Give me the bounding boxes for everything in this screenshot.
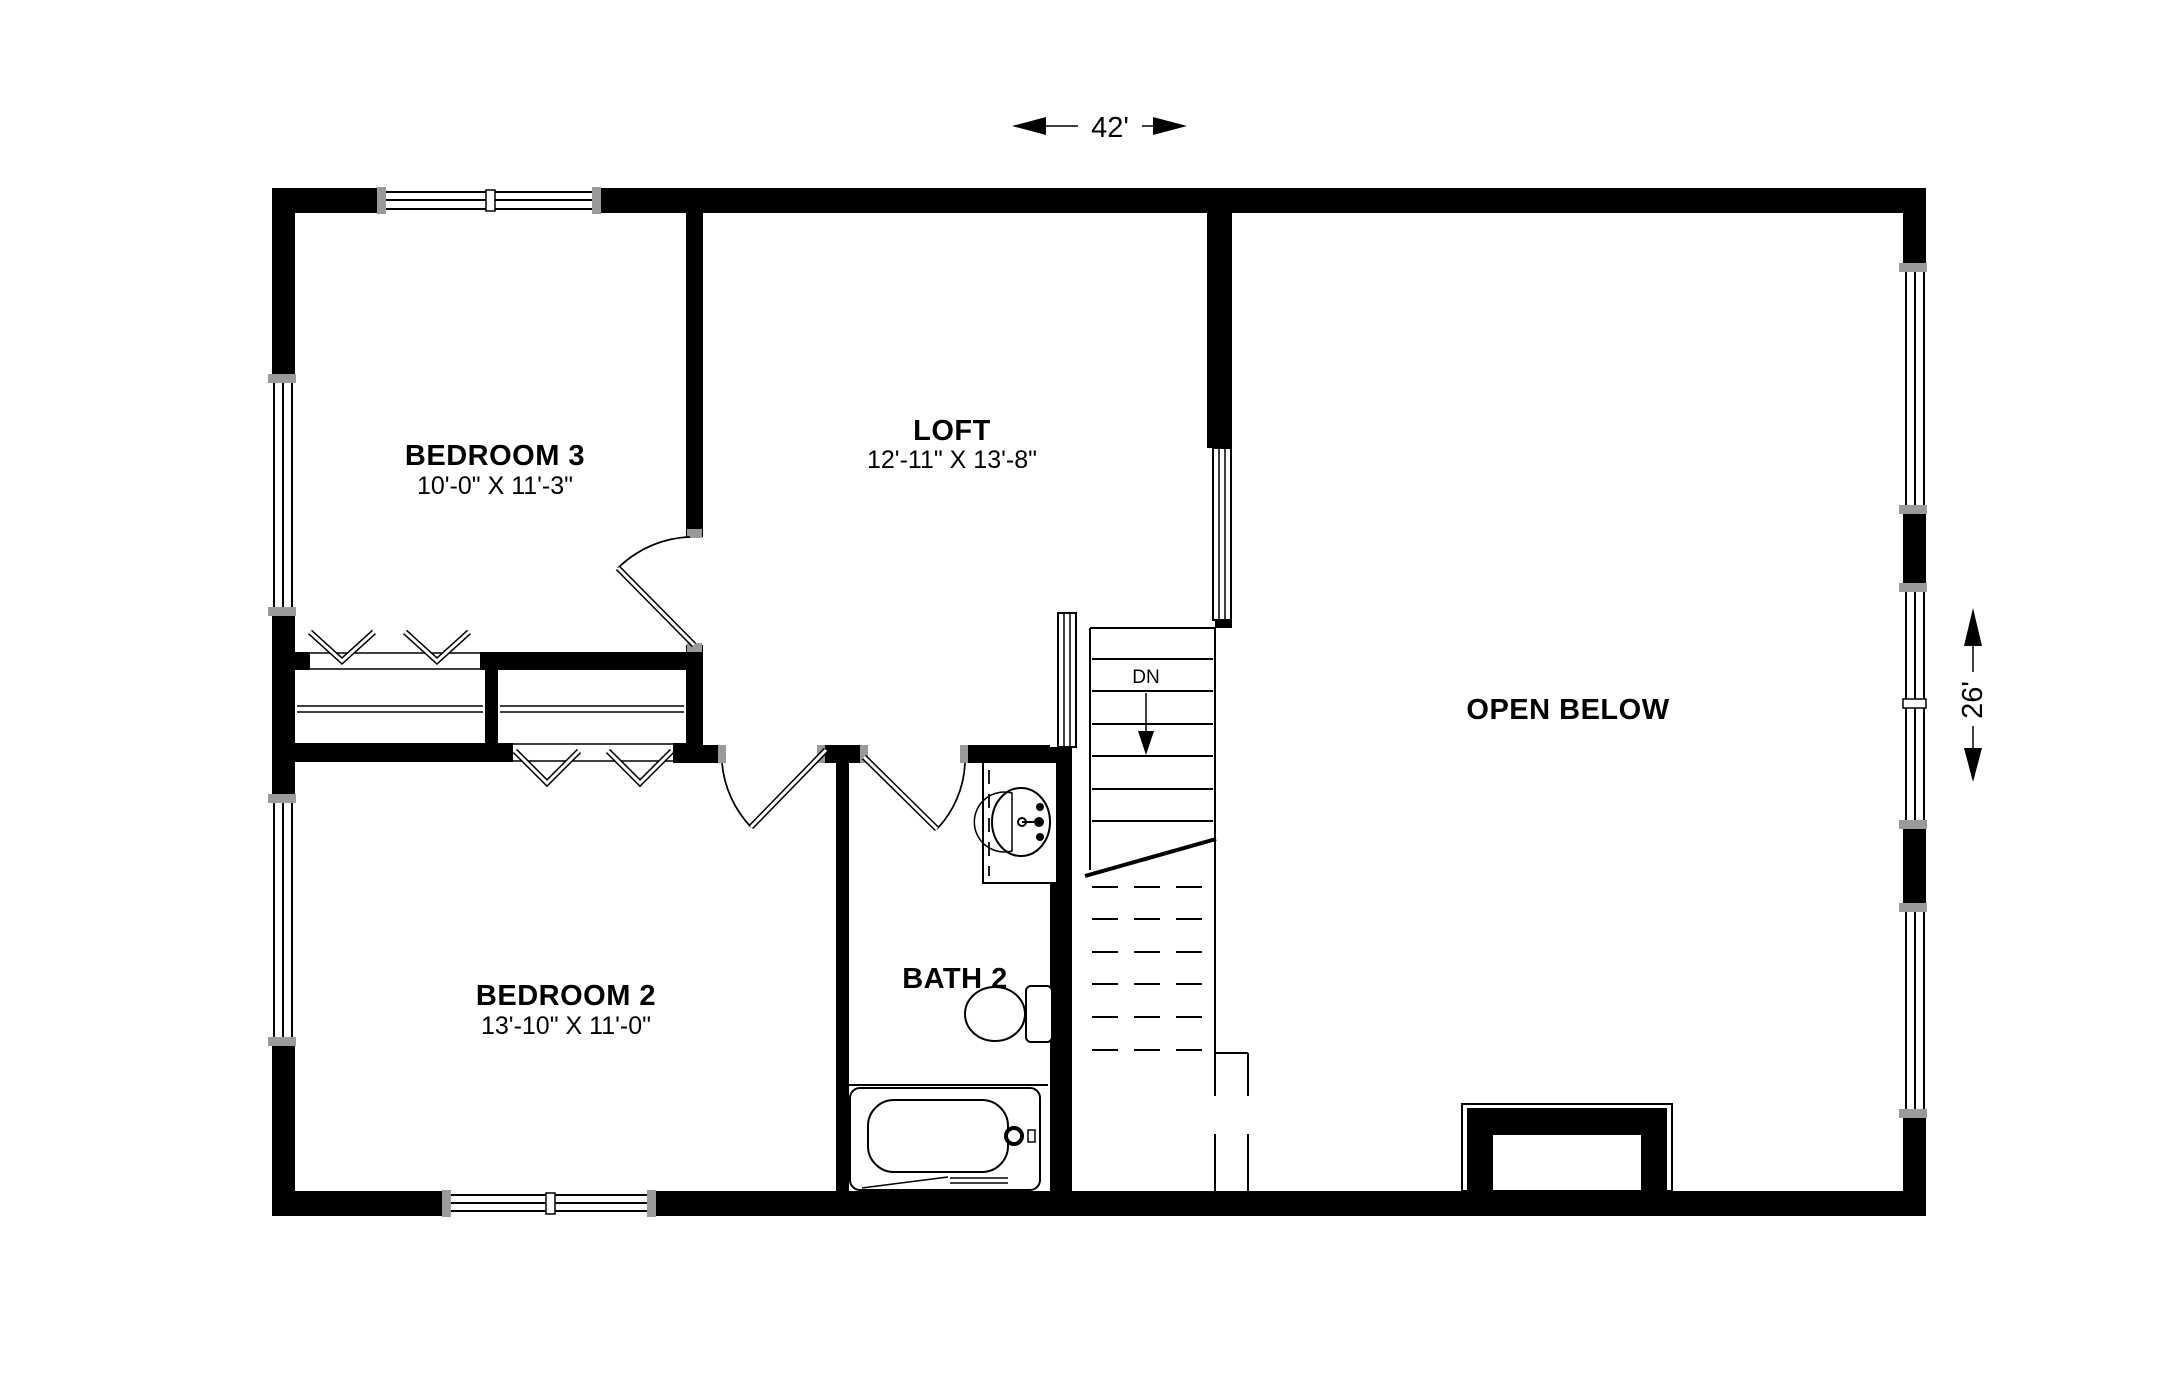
bedroom2-label: BEDROOM 2 [476,980,656,1012]
exterior-walls [272,188,1926,1216]
window-right-middle [1899,583,1927,829]
window-left-bedroom2 [268,794,296,1046]
bifold-door-bedroom2 [515,751,672,783]
window-right-lower [1899,903,1927,1118]
dim-height-arrow-down [1964,748,1982,782]
closet-bedroom2 [500,706,684,783]
bathtub [849,1085,1048,1190]
vanity-sink [974,762,1057,883]
bath2-label: BATH 2 [902,963,1008,995]
door-bedroom2 [718,745,826,827]
window-left-bedroom3 [268,374,296,616]
dimension-height: 26' [1957,608,1989,782]
loft-size: 12'-11" X 13'-8" [867,446,1037,474]
dim-width-label: 42' [1091,112,1129,144]
stair-dn-label: DN [1132,667,1159,688]
stairs: DN [1085,628,1248,1191]
dim-width-arrow-right [1153,117,1187,135]
dim-height-label: 26' [1957,681,1989,719]
stair-railing [1058,613,1076,747]
interior-walls [295,213,1232,1191]
loft-railing [1213,448,1231,620]
door-bath2 [860,745,968,829]
closet-bedroom3 [297,632,483,712]
under-stair-wall [1215,1053,1248,1191]
dim-height-arrow-up [1964,608,1982,646]
open-below-label: OPEN BELOW [1466,694,1669,726]
chimney [1462,1104,1672,1191]
dimension-width: 42' [1012,112,1187,144]
bifold-door-bedroom3 [310,632,469,661]
window-bedroom3-top [377,187,601,214]
floor-plan: DN [0,0,2175,1386]
dn-arrow-head [1138,731,1154,755]
window-bedroom2-bottom [442,1190,656,1217]
bedroom3-label: BEDROOM 3 [405,440,585,472]
stair-break-line [1085,839,1216,876]
window-right-upper [1899,263,1927,514]
bedroom2-size: 13'-10" X 11'-0" [481,1012,651,1040]
loft-label: LOFT [913,415,991,447]
door-bedroom3 [618,529,702,652]
bedroom3-size: 10'-0" X 11'-3" [417,472,573,500]
dim-width-arrow-left [1012,117,1046,135]
room-labels: BEDROOM 3 10'-0" X 11'-3" LOFT 12'-11" X… [405,415,1670,1040]
stair-direction: DN [1132,667,1159,755]
